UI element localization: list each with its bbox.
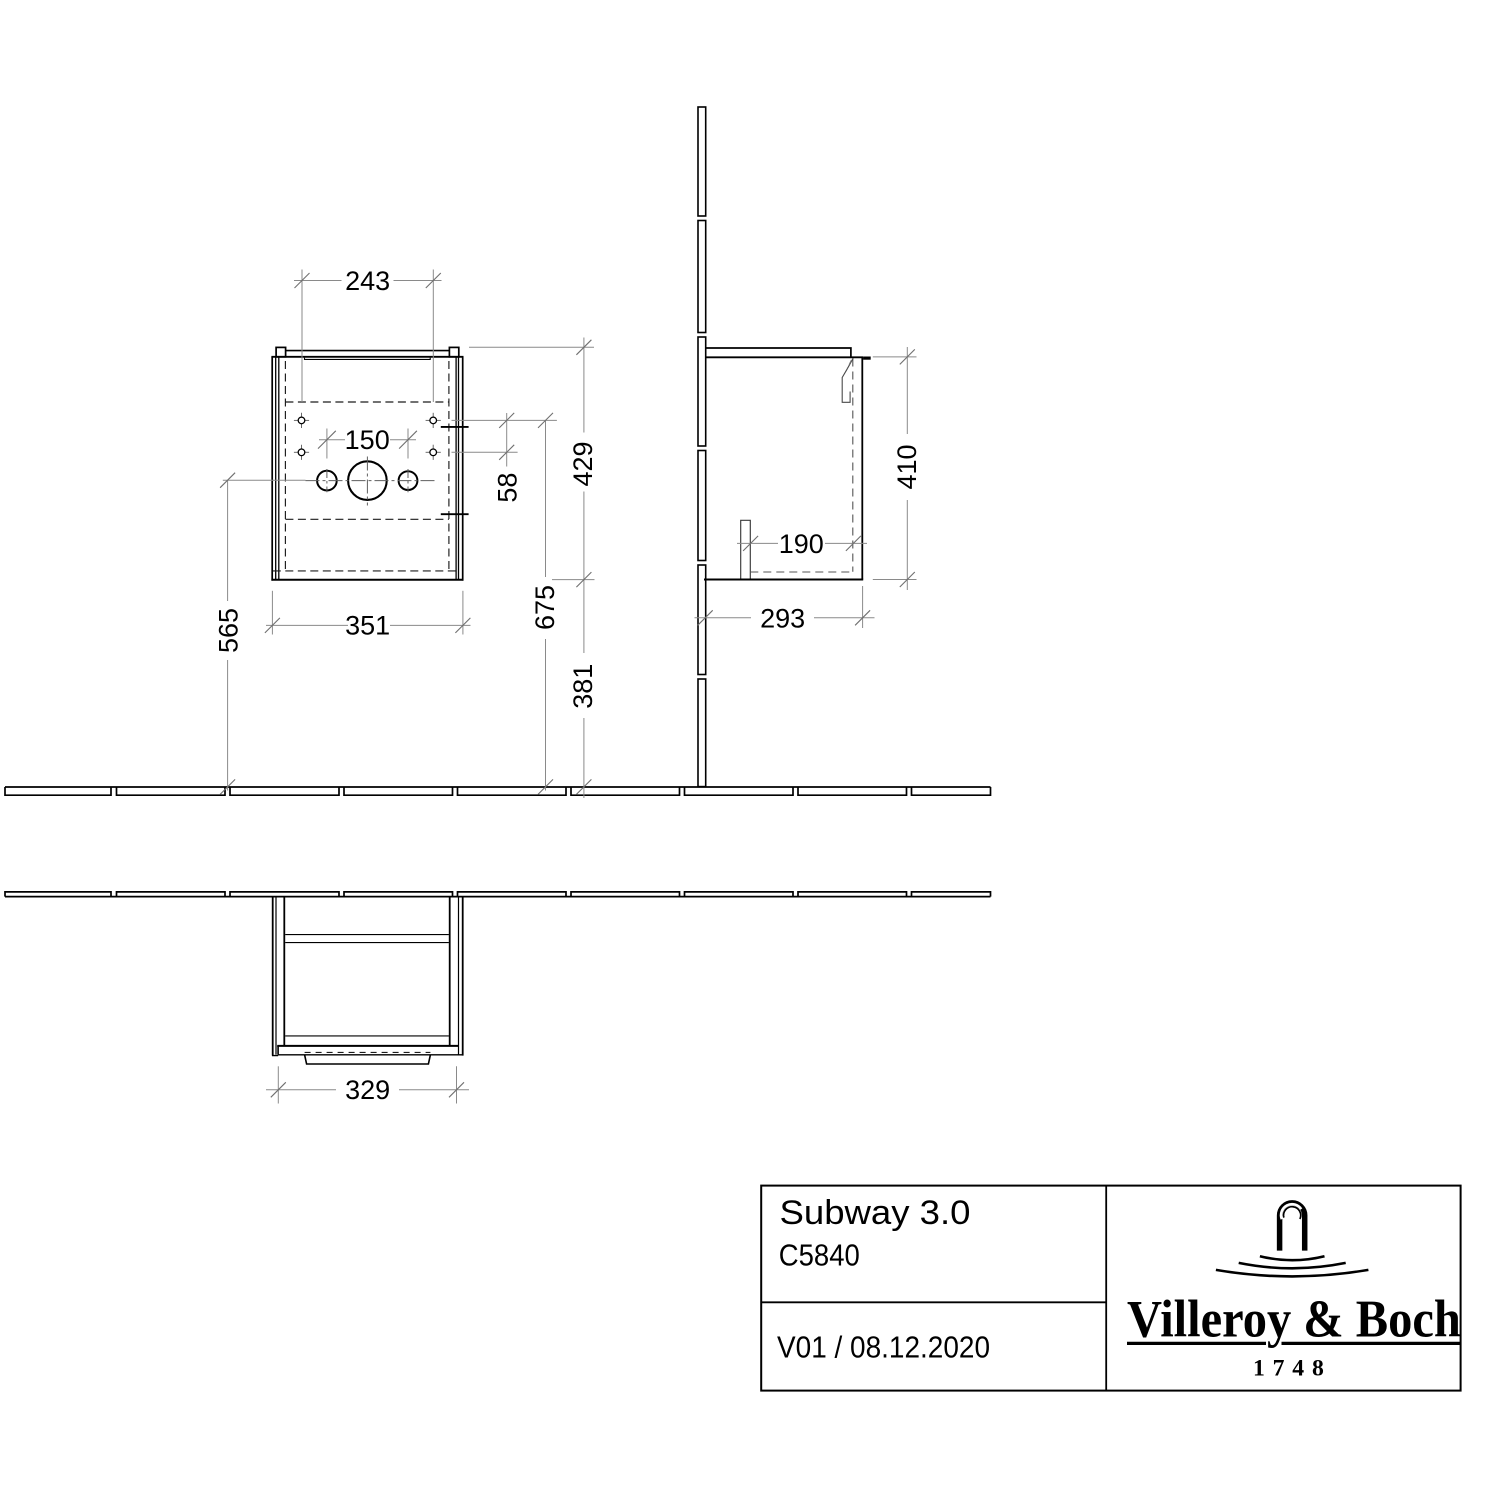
svg-text:410: 410 [892,444,922,489]
svg-text:675: 675 [530,585,560,630]
svg-text:Villeroy & Boch: Villeroy & Boch [1127,1291,1461,1349]
svg-text:C5840: C5840 [779,1239,860,1273]
svg-text:293: 293 [760,604,805,634]
svg-text:351: 351 [345,611,390,641]
svg-text:565: 565 [214,608,244,653]
svg-text:381: 381 [568,664,598,709]
svg-text:150: 150 [345,425,390,455]
svg-text:Subway 3.0: Subway 3.0 [780,1194,971,1232]
svg-text:V01 / 08.12.2020: V01 / 08.12.2020 [777,1329,990,1364]
svg-text:329: 329 [345,1075,390,1105]
svg-text:243: 243 [345,266,390,296]
svg-text:190: 190 [779,529,824,559]
svg-text:429: 429 [568,441,598,486]
svg-text:58: 58 [493,473,523,503]
